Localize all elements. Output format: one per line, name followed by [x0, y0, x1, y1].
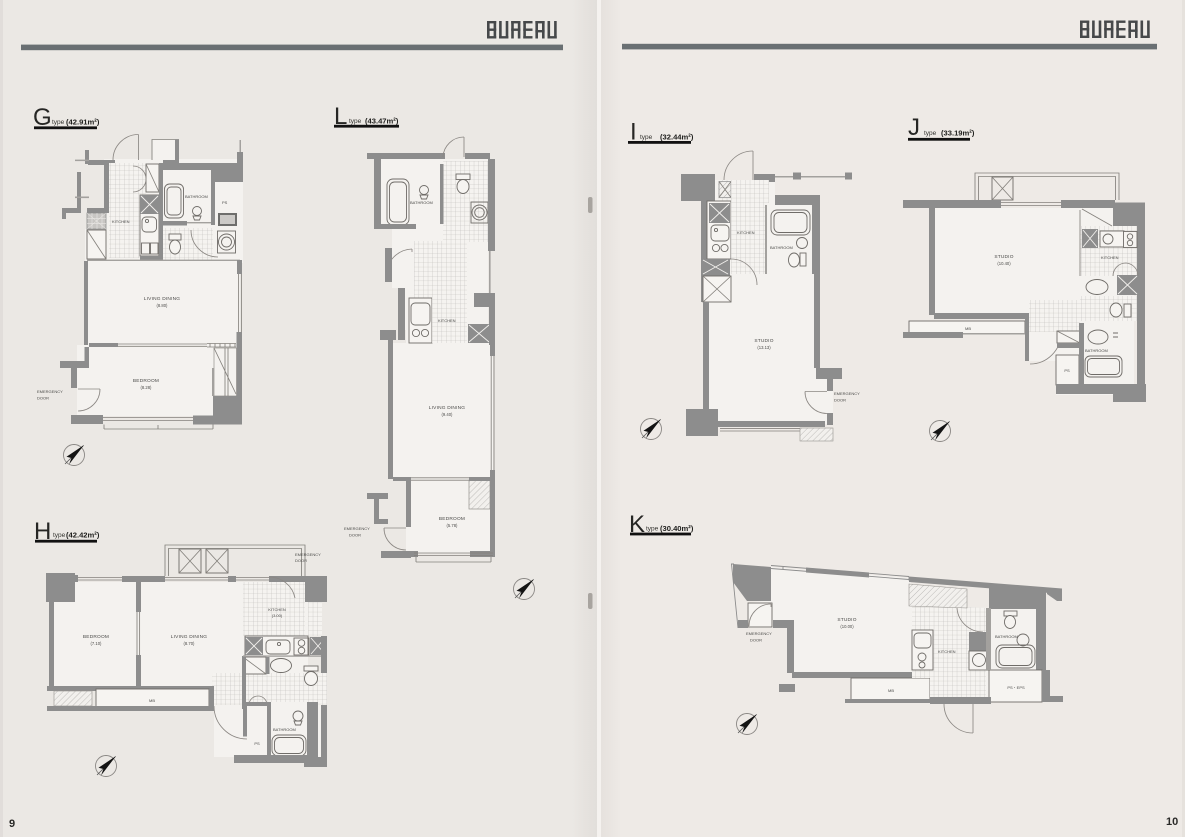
svg-text:MB: MB: [888, 688, 894, 693]
svg-text:DOOR: DOOR: [37, 396, 49, 401]
svg-text:MB: MB: [965, 326, 971, 331]
svg-text:STUDIO: STUDIO: [994, 254, 1013, 260]
svg-text:BATHROOM: BATHROOM: [770, 245, 793, 250]
svg-text:J: J: [908, 114, 920, 141]
svg-text:STUDIO: STUDIO: [837, 617, 856, 623]
svg-text:PS: PS: [222, 200, 228, 205]
svg-text:(8.80): (8.80): [157, 303, 169, 308]
svg-text:BEDROOM: BEDROOM: [439, 516, 465, 522]
svg-text:(10.00): (10.00): [840, 624, 854, 629]
svg-text:(33.19m²): (33.19m²): [941, 129, 975, 138]
svg-text:type: type: [646, 526, 659, 533]
svg-text:KITCHEN: KITCHEN: [938, 649, 956, 654]
svg-text:EMERGENCY: EMERGENCY: [746, 631, 772, 636]
svg-text:10: 10: [1166, 816, 1178, 828]
svg-text:BEDROOM: BEDROOM: [133, 378, 159, 384]
svg-text:(8.70): (8.70): [184, 641, 196, 646]
svg-text:type: type: [349, 118, 362, 125]
svg-text:(32.44m²): (32.44m²): [660, 133, 694, 142]
svg-text:LIVING DINING: LIVING DINING: [429, 405, 466, 411]
svg-text:BATHROOM: BATHROOM: [410, 200, 433, 205]
svg-text:DOOR: DOOR: [750, 638, 762, 643]
svg-text:BEDROOM: BEDROOM: [83, 634, 109, 640]
svg-text:BATHROOM: BATHROOM: [185, 194, 208, 199]
svg-text:(5.78): (5.78): [447, 523, 459, 528]
svg-text:type: type: [640, 134, 653, 141]
svg-text:BATHROOM: BATHROOM: [995, 634, 1018, 639]
svg-text:KITCHEN: KITCHEN: [1101, 255, 1119, 260]
svg-text:(30.40m²): (30.40m²): [660, 524, 694, 533]
svg-text:DOOR: DOOR: [834, 398, 846, 403]
svg-text:(43.47m²): (43.47m²): [365, 117, 399, 126]
svg-text:(42.42m²): (42.42m²): [66, 531, 100, 540]
svg-text:EMERGENCY: EMERGENCY: [295, 552, 321, 557]
svg-text:(13.13): (13.13): [757, 345, 771, 350]
svg-text:EMERGENCY: EMERGENCY: [834, 391, 860, 396]
svg-text:LIVING DINING: LIVING DINING: [171, 634, 208, 640]
svg-text:9: 9: [9, 818, 15, 830]
svg-text:MB: MB: [149, 698, 155, 703]
svg-text:BATHROOM: BATHROOM: [1085, 348, 1108, 353]
svg-text:DOOR: DOOR: [295, 558, 307, 563]
svg-text:BATHROOM: BATHROOM: [273, 727, 296, 732]
svg-text:KITCHEN: KITCHEN: [268, 607, 286, 612]
svg-text:(9.40): (9.40): [442, 412, 454, 417]
svg-text:PS・EPS: PS・EPS: [1007, 685, 1025, 690]
svg-text:STUDIO: STUDIO: [754, 338, 773, 344]
svg-text:EMERGENCY: EMERGENCY: [344, 526, 370, 531]
svg-text:type: type: [924, 130, 937, 137]
svg-text:PS: PS: [254, 741, 260, 746]
svg-text:(3.00): (3.00): [272, 613, 283, 618]
svg-text:(10.40): (10.40): [997, 261, 1011, 266]
svg-text:KITCHEN: KITCHEN: [737, 230, 755, 235]
svg-text:KITCHEN: KITCHEN: [112, 219, 130, 224]
svg-text:(8.28): (8.28): [141, 385, 153, 390]
svg-text:type: type: [53, 532, 66, 539]
svg-text:PS: PS: [1064, 368, 1070, 373]
svg-text:KITCHEN: KITCHEN: [438, 318, 456, 323]
svg-text:type: type: [52, 119, 65, 126]
svg-text:EMERGENCY: EMERGENCY: [37, 389, 63, 394]
svg-text:LIVING DINING: LIVING DINING: [144, 296, 181, 302]
svg-text:(7.10): (7.10): [91, 641, 103, 646]
svg-text:DOOR: DOOR: [349, 533, 361, 538]
svg-text:(42.91m²): (42.91m²): [66, 118, 100, 127]
